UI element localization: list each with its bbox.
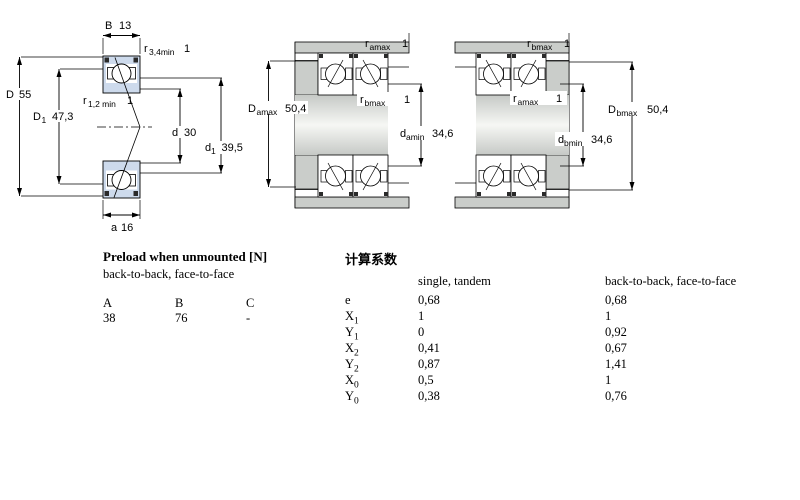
- calculation-factors-table: 计算系数 single, tandem back-to-back, face-t…: [345, 249, 775, 405]
- bearing-datasheet: B13 r3,4min1 D55 r1,2 min1 D147,3 d30 d1…: [0, 0, 800, 500]
- dim-label-r12: r1,2 min1: [83, 95, 133, 109]
- factor-row-v1: 0: [418, 325, 605, 341]
- housing-band-bottom: [295, 197, 409, 208]
- factor-row-label: Y1: [345, 325, 418, 341]
- dim-label-B: B13: [105, 20, 131, 32]
- factor-row-label: X0: [345, 373, 418, 389]
- factors-header-b2b-f2f: back-to-back, face-to-face: [605, 274, 775, 293]
- dim-label-D: D55: [6, 89, 31, 101]
- factor-row-label: e: [345, 293, 418, 309]
- factor-row-label: X1: [345, 309, 418, 325]
- factor-row-v1: 1: [418, 309, 605, 325]
- preload-title: Preload when unmounted [N]: [103, 249, 296, 265]
- technical-drawings: B13 r3,4min1 D55 r1,2 min1 D147,3 d30 d1…: [0, 0, 800, 245]
- factors-grid: single, tandem back-to-back, face-to-fac…: [345, 274, 775, 405]
- dim-label-d: d30: [172, 127, 196, 139]
- ball-top: [112, 64, 131, 83]
- preload-header-a: A: [103, 296, 175, 311]
- factor-row-v1: 0,87: [418, 357, 605, 373]
- preload-value-c: -: [246, 311, 296, 326]
- dim-label-d1: d139,5: [205, 142, 243, 156]
- preload-header-b: B: [175, 296, 246, 311]
- factor-row-v2: 0,76: [605, 389, 775, 405]
- dim-label-D1: D147,3: [33, 111, 73, 125]
- single-bearing-diagram: [97, 56, 152, 198]
- mounted-diagram-b: [455, 33, 671, 208]
- dim-label-a: a16: [111, 222, 133, 234]
- preload-value-a: 38: [103, 311, 175, 326]
- housing-band-top: [295, 42, 409, 53]
- mounted-diagram-a: [246, 33, 457, 208]
- dim-label-ramax-top: ramax1: [365, 38, 408, 52]
- factor-row-v2: 1: [605, 309, 775, 325]
- preload-value-b: 76: [175, 311, 246, 326]
- factor-row-v1: 0,68: [418, 293, 605, 309]
- factor-row-v1: 0,38: [418, 389, 605, 405]
- factor-row-label: X2: [345, 341, 418, 357]
- preload-table: Preload when unmounted [N] back-to-back,…: [103, 249, 296, 326]
- factor-row-label: Y0: [345, 389, 418, 405]
- factors-header-single-tandem: single, tandem: [418, 274, 605, 293]
- preload-header-c: C: [246, 296, 296, 311]
- factor-row-v2: 0,68: [605, 293, 775, 309]
- dim-label-r34: r3,4min1: [144, 43, 190, 57]
- housing-band-bottom: [455, 197, 569, 208]
- factors-header-spacer: [345, 274, 418, 293]
- dim-label-rbmax-top: rbmax1: [527, 38, 570, 52]
- factors-title: 计算系数: [345, 249, 775, 268]
- factor-row-label: Y2: [345, 357, 418, 373]
- ball-bottom: [112, 171, 131, 190]
- factor-row-v1: 0,5: [418, 373, 605, 389]
- preload-grid: A B C 38 76 -: [103, 296, 296, 326]
- factor-row-v1: 0,41: [418, 341, 605, 357]
- factor-row-v2: 1: [605, 373, 775, 389]
- factor-row-v2: 0,67: [605, 341, 775, 357]
- preload-subtitle: back-to-back, face-to-face: [103, 267, 296, 282]
- factor-row-v2: 0,92: [605, 325, 775, 341]
- factor-row-v2: 1,41: [605, 357, 775, 373]
